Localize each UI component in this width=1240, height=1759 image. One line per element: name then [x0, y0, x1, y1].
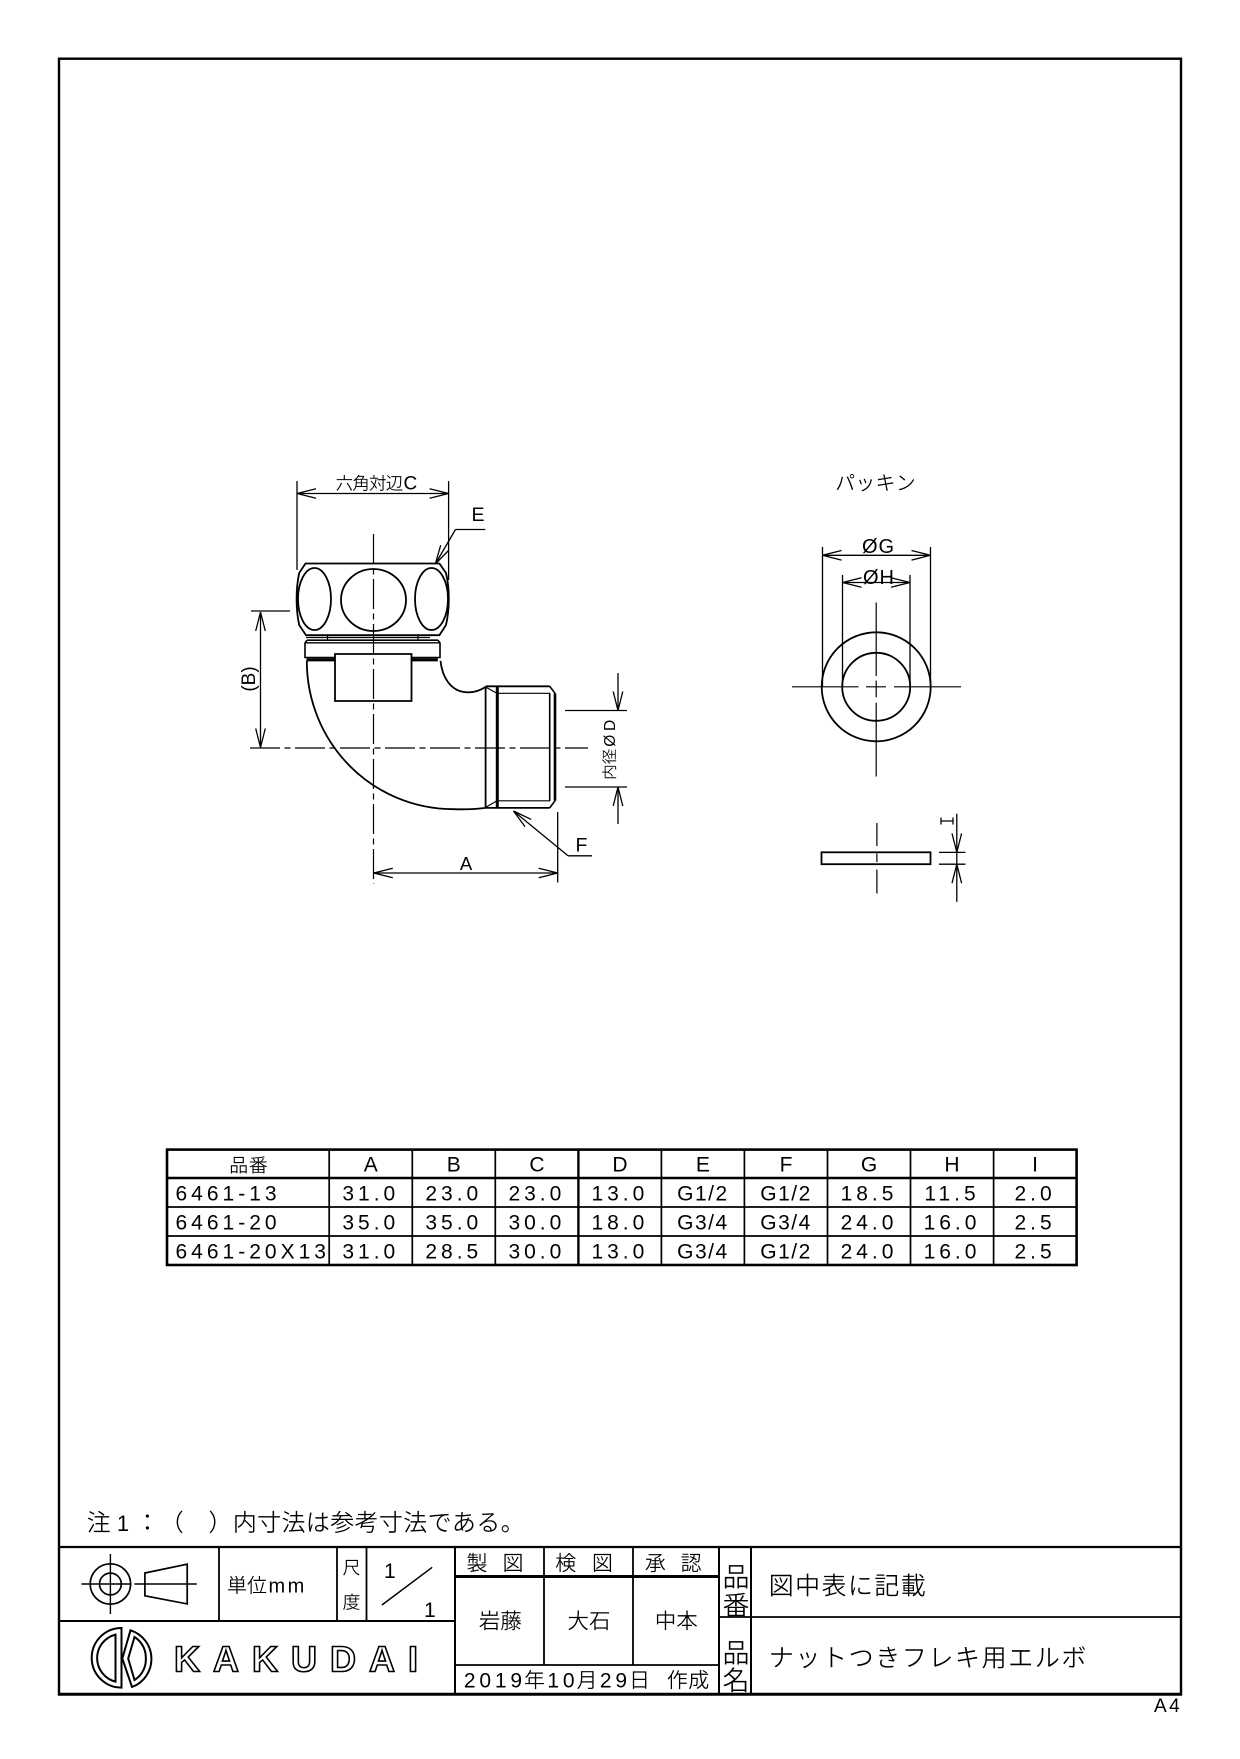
svg-text:A: A: [364, 1154, 378, 1177]
svg-text:1: 1: [424, 1599, 436, 1622]
svg-text:1: 1: [384, 1560, 396, 1583]
svg-text:ØH: ØH: [863, 567, 895, 589]
svg-text:9: 9: [615, 1670, 627, 1693]
svg-text:11.5: 11.5: [924, 1183, 979, 1206]
svg-text:(B): (B): [239, 666, 260, 691]
svg-text:24.0: 24.0: [841, 1241, 898, 1264]
svg-text:18.5: 18.5: [841, 1183, 898, 1206]
svg-text:30.0: 30.0: [508, 1212, 565, 1235]
svg-text:G3/4: G3/4: [677, 1212, 729, 1235]
svg-text:G1/2: G1/2: [760, 1241, 812, 1264]
svg-text:23.0: 23.0: [508, 1183, 565, 1206]
svg-text:16.0: 16.0: [924, 1212, 981, 1235]
svg-text:0: 0: [479, 1670, 491, 1693]
svg-text:2: 2: [600, 1670, 612, 1693]
svg-text:G1/2: G1/2: [760, 1183, 812, 1206]
svg-text:13.0: 13.0: [591, 1183, 648, 1206]
svg-text:D: D: [602, 720, 619, 731]
svg-text:2.5: 2.5: [1014, 1212, 1055, 1235]
svg-text:2.0: 2.0: [1014, 1183, 1055, 1206]
svg-text:KAKUDAI: KAKUDAI: [174, 1639, 431, 1680]
svg-text:C: C: [529, 1154, 544, 1177]
svg-text:0: 0: [563, 1670, 575, 1693]
svg-text:31.0: 31.0: [342, 1241, 399, 1264]
svg-text:6461-13: 6461-13: [176, 1183, 281, 1206]
svg-text:B: B: [447, 1154, 461, 1177]
svg-text:30.0: 30.0: [508, 1241, 565, 1264]
svg-text:6461-20: 6461-20: [176, 1212, 281, 1235]
svg-text:1: 1: [117, 1511, 129, 1536]
svg-text:G3/4: G3/4: [677, 1241, 729, 1264]
svg-text:A4: A4: [1154, 1696, 1182, 1717]
svg-text:6461-20X13: 6461-20X13: [176, 1241, 330, 1264]
svg-text:G3/4: G3/4: [760, 1212, 812, 1235]
svg-text:A: A: [460, 853, 473, 874]
svg-text:G1/2: G1/2: [677, 1183, 729, 1206]
svg-text:F: F: [780, 1154, 793, 1177]
svg-text:13.0: 13.0: [591, 1241, 648, 1264]
svg-text:I: I: [1032, 1154, 1038, 1177]
svg-text:E: E: [696, 1154, 710, 1177]
svg-text:18.0: 18.0: [591, 1212, 648, 1235]
svg-text:D: D: [612, 1154, 627, 1177]
svg-text:28.5: 28.5: [425, 1241, 482, 1264]
svg-text:24.0: 24.0: [841, 1212, 898, 1235]
svg-text:9: 9: [510, 1670, 522, 1693]
svg-text:35.0: 35.0: [342, 1212, 399, 1235]
svg-text:16.0: 16.0: [924, 1241, 981, 1264]
svg-text:1: 1: [547, 1670, 559, 1693]
svg-text:2: 2: [464, 1670, 476, 1693]
svg-text:1: 1: [495, 1670, 507, 1693]
svg-text:E: E: [472, 504, 485, 526]
svg-text:H: H: [944, 1154, 959, 1177]
svg-text:G: G: [861, 1154, 877, 1177]
svg-text:35.0: 35.0: [425, 1212, 482, 1235]
svg-text:Ø: Ø: [602, 735, 619, 747]
svg-text:mm: mm: [269, 1576, 307, 1598]
svg-text:23.0: 23.0: [425, 1183, 482, 1206]
svg-text:C: C: [404, 474, 418, 495]
svg-text:2.5: 2.5: [1014, 1241, 1055, 1264]
svg-text:31.0: 31.0: [342, 1183, 399, 1206]
svg-text:F: F: [576, 835, 588, 857]
